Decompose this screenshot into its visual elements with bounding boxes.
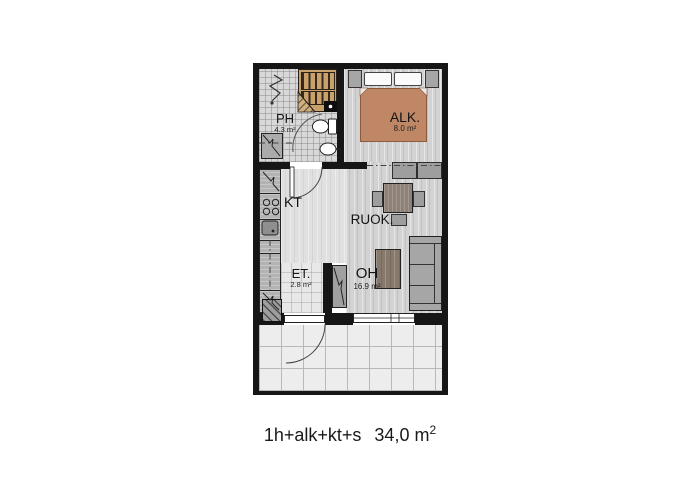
room-label-et: ET. 2.8 m²: [281, 267, 321, 290]
nightstand: [425, 70, 439, 88]
room-area: 4.3 m²: [263, 126, 307, 134]
room-label-kt: KT: [277, 195, 309, 210]
balcony-floor: [259, 325, 442, 391]
room-name: PH: [263, 112, 307, 126]
sideboard: [417, 162, 442, 179]
wall: [337, 69, 344, 162]
dining-chair: [372, 191, 383, 207]
dining-table: [383, 183, 413, 213]
wall: [322, 162, 367, 169]
room-label-alk: ALK. 8.0 m²: [377, 110, 433, 134]
room-name: OH: [345, 266, 389, 283]
sofa: [409, 236, 442, 311]
sauna-stove-icon: [324, 101, 337, 112]
balcony-door: [284, 315, 325, 323]
counter-segment: [260, 241, 280, 254]
bed-pillow: [364, 72, 392, 86]
bed-pillow: [394, 72, 422, 86]
kitchen-counter: [259, 169, 281, 313]
room-area: 8.0 m²: [377, 125, 433, 134]
room-area: 16.9 m²: [345, 283, 389, 292]
caption: 1h+alk+kt+s34,0 m2: [0, 423, 700, 446]
wall: [442, 63, 448, 395]
wall: [323, 263, 332, 313]
washing-machine-icon: [261, 133, 283, 159]
wall: [415, 313, 442, 325]
room-name: RUOK.: [343, 213, 401, 228]
counter-segment: [260, 254, 280, 291]
floorplan: PH 4.3 m² ALK. 8.0 m² KT RUOK. ET. 2.8 m…: [253, 63, 448, 395]
dining-chair: [413, 191, 425, 207]
layout-type-label: 1h+alk+kt+s: [264, 425, 362, 445]
balcony-railing: [253, 391, 448, 395]
room-label-oh: OH 16.9 m²: [345, 266, 389, 291]
area-superscript: 2: [429, 423, 436, 437]
sauna-bench-upper: [301, 72, 335, 90]
room-name: ET.: [281, 267, 321, 281]
room-name: KT: [277, 195, 309, 210]
window: [353, 313, 415, 323]
wall: [325, 313, 353, 325]
room-label-ph: PH 4.3 m²: [263, 112, 307, 135]
room-kt-floor: [281, 169, 346, 263]
fridge-icon: [260, 170, 280, 194]
duct-shaft: [262, 299, 282, 322]
nightstand: [348, 70, 362, 88]
room-area: 2.8 m²: [281, 281, 321, 289]
sink-icon: [260, 220, 280, 241]
wall: [253, 63, 259, 395]
room-label-ruok: RUOK.: [343, 213, 401, 228]
floorplan-image: PH 4.3 m² ALK. 8.0 m² KT RUOK. ET. 2.8 m…: [0, 0, 700, 500]
total-area: 34,0 m2: [374, 425, 436, 445]
room-name: ALK.: [377, 110, 433, 125]
wall: [253, 63, 448, 69]
sideboard: [392, 162, 417, 179]
wall: [259, 162, 290, 169]
